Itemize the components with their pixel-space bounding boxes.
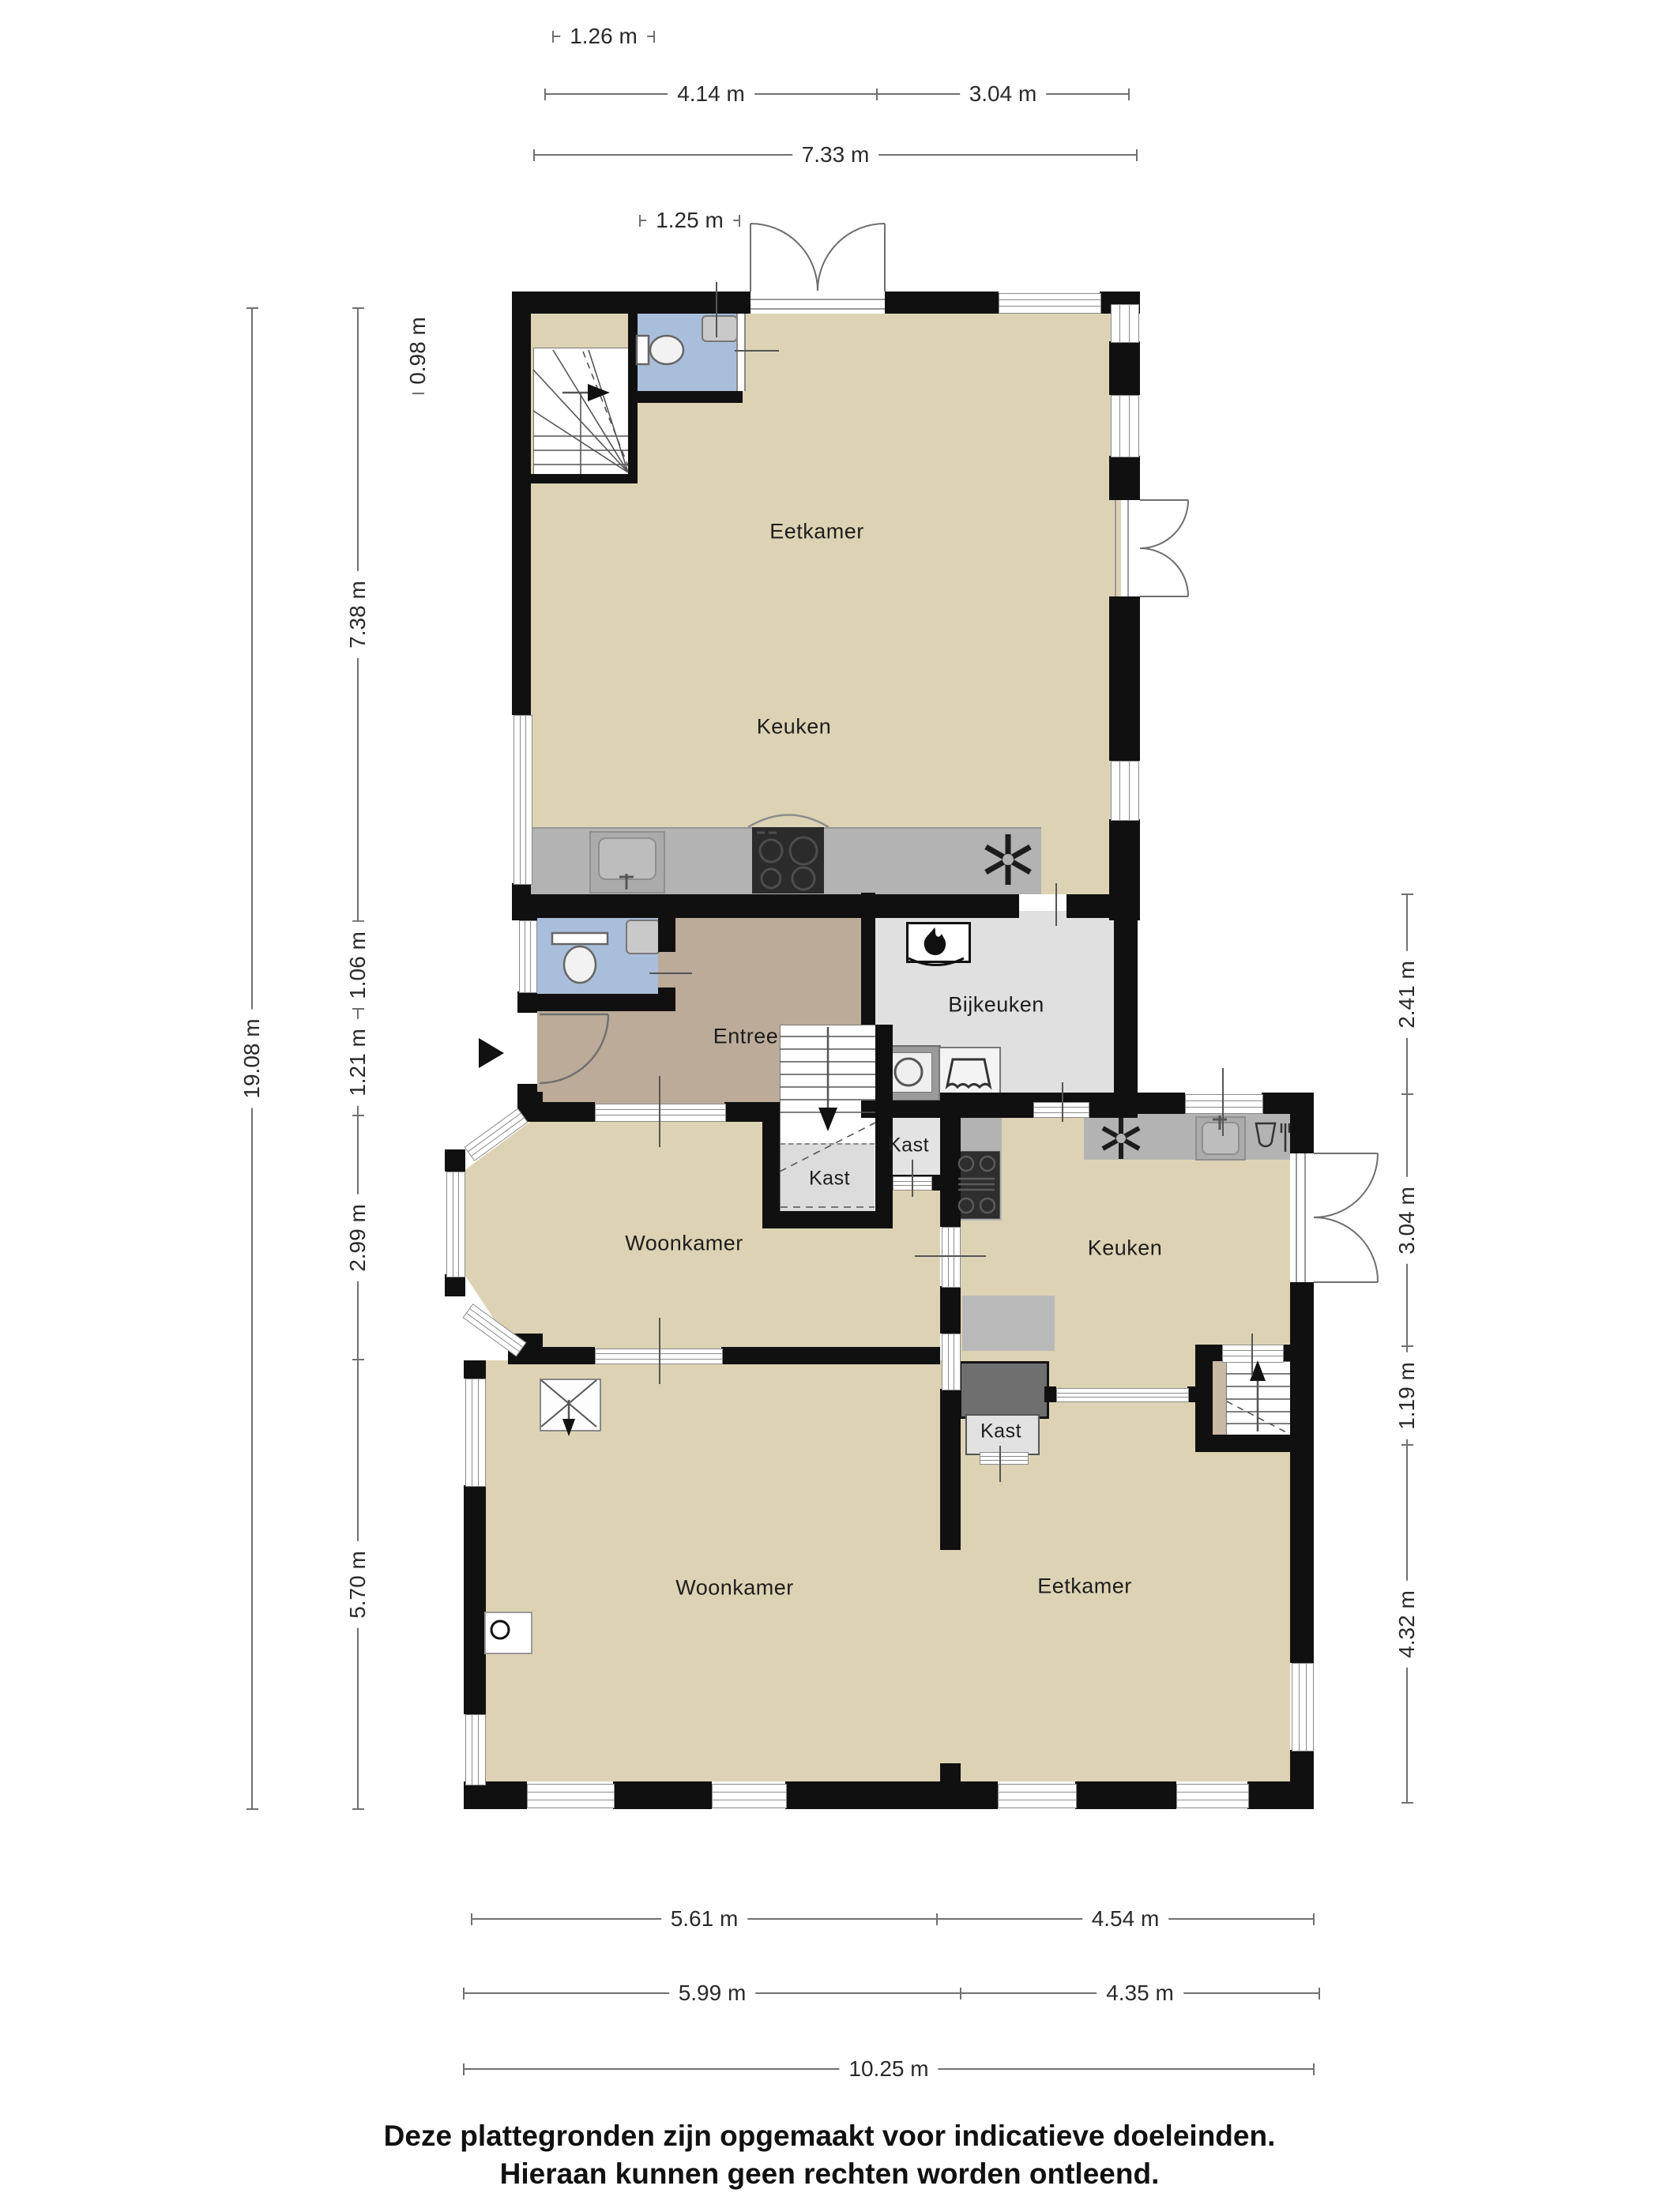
wall: [785, 1781, 998, 1809]
cabinet-block-keuken-beneden: [962, 1296, 1055, 1351]
window-links-woonkamer-2: [465, 1714, 486, 1785]
wall: [861, 893, 875, 1025]
wall: [464, 1485, 486, 1714]
label-kast-eetkamer: Kast: [980, 1420, 1021, 1443]
wall: [940, 1093, 961, 1227]
wall: [1109, 292, 1140, 304]
threshold-double-door-top: [750, 299, 885, 300]
kitchen-counter-beneden-top: [1084, 1112, 1290, 1160]
dim-top-5: 1.25 m: [640, 220, 739, 221]
staircase-eetkamer: [1226, 1361, 1292, 1436]
wall: [1247, 1781, 1314, 1809]
window-kast-hal: [893, 1176, 932, 1191]
label-woonkamer-midden: Woonkamer: [625, 1232, 743, 1256]
washbasin-toilet-boven: [702, 315, 738, 342]
wall: [512, 474, 638, 483]
floorplan-canvas: Eetkamer Keuken Entree Bijkeuken Kast Ka…: [0, 0, 1659, 2212]
label-kast-onder-trap: Kast: [809, 1168, 850, 1191]
dim-right-2: 3.04 m: [1406, 1094, 1408, 1346]
wall: [512, 894, 1019, 918]
label-keuken-boven: Keuken: [757, 715, 832, 739]
window-zuid-1: [527, 1784, 615, 1808]
floor-woonkamer-eetkamer-beneden: [486, 1360, 1290, 1781]
wall: [445, 1149, 465, 1172]
window-right-3: [1111, 761, 1139, 821]
dim-top-3: 3.04 m: [877, 93, 1129, 95]
disclaimer-line-2: Hieraan kunnen geen rechten worden ontle…: [0, 2157, 1659, 2191]
dim-left-2: 1.06 m: [357, 921, 359, 1009]
sink-basin-beneden: [1202, 1122, 1240, 1155]
window-zuid-2: [712, 1784, 787, 1808]
window-rechts-eetkamer: [1292, 1663, 1314, 1751]
wall: [1109, 456, 1140, 500]
window-woonkamer-keuken-1: [942, 1227, 961, 1288]
chimney-box: [540, 1379, 601, 1431]
window-zuid-3: [998, 1784, 1077, 1808]
window-keuken-beneden-noord: [1185, 1094, 1263, 1114]
label-eetkamer-boven: Eetkamer: [769, 520, 864, 544]
wall: [1290, 1093, 1314, 1153]
wall: [464, 1360, 486, 1379]
wall: [613, 1781, 712, 1809]
washbasin-toilet-entree: [626, 920, 660, 954]
dim-top-1: 1.26 m: [553, 36, 654, 37]
washing-machine-door-panel: [886, 1052, 932, 1093]
wall: [762, 1102, 780, 1228]
wall: [445, 1274, 465, 1296]
dim-bottom-3: 5.99 m: [464, 1992, 961, 1994]
label-bijkeuken: Bijkeuken: [948, 993, 1044, 1018]
staircase-boven: [533, 348, 630, 476]
wall: [464, 1781, 527, 1809]
dim-bottom-2: 4.54 m: [937, 1918, 1314, 1920]
window-woonkamer-midden-zuid: [595, 1349, 723, 1364]
dim-right-3: 1.19 m: [1406, 1346, 1408, 1445]
wall: [658, 916, 675, 952]
dim-left-5: 5.70 m: [357, 1360, 359, 1809]
window-top-eetkamer: [999, 293, 1101, 314]
wall: [1262, 1093, 1290, 1114]
wall: [762, 1211, 893, 1228]
wall: [1109, 596, 1140, 761]
wall: [512, 292, 531, 715]
cooktop-boven: [752, 827, 824, 893]
entrance-arrow-icon: [479, 1038, 504, 1068]
window-right-1: [1111, 304, 1139, 343]
window-kast-eetkamer: [980, 1452, 1029, 1465]
window-zuid-4: [1176, 1784, 1249, 1808]
wall: [940, 1389, 961, 1550]
threshold-double-door-top-2: [750, 308, 885, 310]
window-keuken-eetkamer: [1056, 1388, 1189, 1402]
window-toilet-entree: [519, 920, 537, 993]
dim-bottom-5: 10.25 m: [464, 2068, 1314, 2070]
window-bijkeuken-zuid: [1033, 1102, 1089, 1118]
window-right-2: [1111, 395, 1139, 457]
dim-left-4: 2.99 m: [357, 1115, 359, 1360]
wall: [885, 292, 999, 314]
wall: [1290, 1282, 1314, 1361]
dim-left-total: 19.08 m: [251, 308, 253, 1809]
dim-bottom-1: 5.61 m: [472, 1918, 937, 1920]
disclaimer-line-1: Deze plattegronden zijn opgemaakt voor i…: [0, 2120, 1659, 2153]
wall: [1044, 1386, 1056, 1402]
wall: [1114, 893, 1138, 1100]
wall: [628, 391, 743, 403]
window-entree-woonkamer: [595, 1104, 726, 1122]
label-keuken-beneden: Keuken: [1088, 1236, 1163, 1261]
fireplace: [484, 1612, 532, 1654]
dim-left-3: 1.21 m: [357, 1009, 359, 1115]
dim-left-6: 0.98 m: [417, 308, 419, 393]
wall: [1290, 1361, 1314, 1663]
wall: [517, 1092, 543, 1112]
wall: [875, 1025, 893, 1228]
wall: [940, 1286, 961, 1334]
window-woonkamer-keuken-2: [942, 1334, 961, 1390]
wall: [1195, 1435, 1314, 1452]
wall: [1213, 1345, 1222, 1361]
dim-top-2: 4.14 m: [545, 93, 877, 95]
window-boven-trap-eetkamer: [1222, 1345, 1284, 1363]
french-doors-eetkamer-boven: [1115, 500, 1188, 596]
stove-beneden: [954, 1151, 1000, 1219]
kast-eetkamer-dark: [959, 1361, 1049, 1419]
dim-right-4: 4.32 m: [1406, 1445, 1408, 1803]
label-entree: Entree: [713, 1025, 779, 1049]
dim-left-1: 7.38 m: [357, 308, 359, 921]
french-doors-keuken-beneden: [1296, 1153, 1378, 1282]
label-woonkamer-beneden: Woonkamer: [675, 1576, 794, 1601]
staircase-eetkamer-landing: [1213, 1361, 1226, 1435]
label-eetkamer-beneden: Eetkamer: [1037, 1574, 1132, 1599]
double-door-top: [750, 224, 885, 292]
window-left-keuken-boven: [513, 715, 532, 885]
wall: [721, 1347, 940, 1364]
toilet-partition-boven: [736, 314, 746, 391]
label-kast-hal: Kast: [888, 1134, 929, 1157]
wall: [1075, 1781, 1176, 1809]
dim-top-4: 7.33 m: [534, 154, 1137, 156]
wall: [628, 292, 638, 483]
wall: [1109, 341, 1140, 395]
boiler-unit: [906, 922, 971, 963]
dim-bottom-4: 4.35 m: [961, 1992, 1319, 1994]
bay-window-left: [446, 1172, 465, 1277]
window-links-woonkamer-1: [465, 1379, 486, 1487]
wall: [517, 994, 675, 1011]
sink-basin-boven: [598, 837, 656, 880]
dim-right-1: 2.41 m: [1406, 894, 1408, 1094]
